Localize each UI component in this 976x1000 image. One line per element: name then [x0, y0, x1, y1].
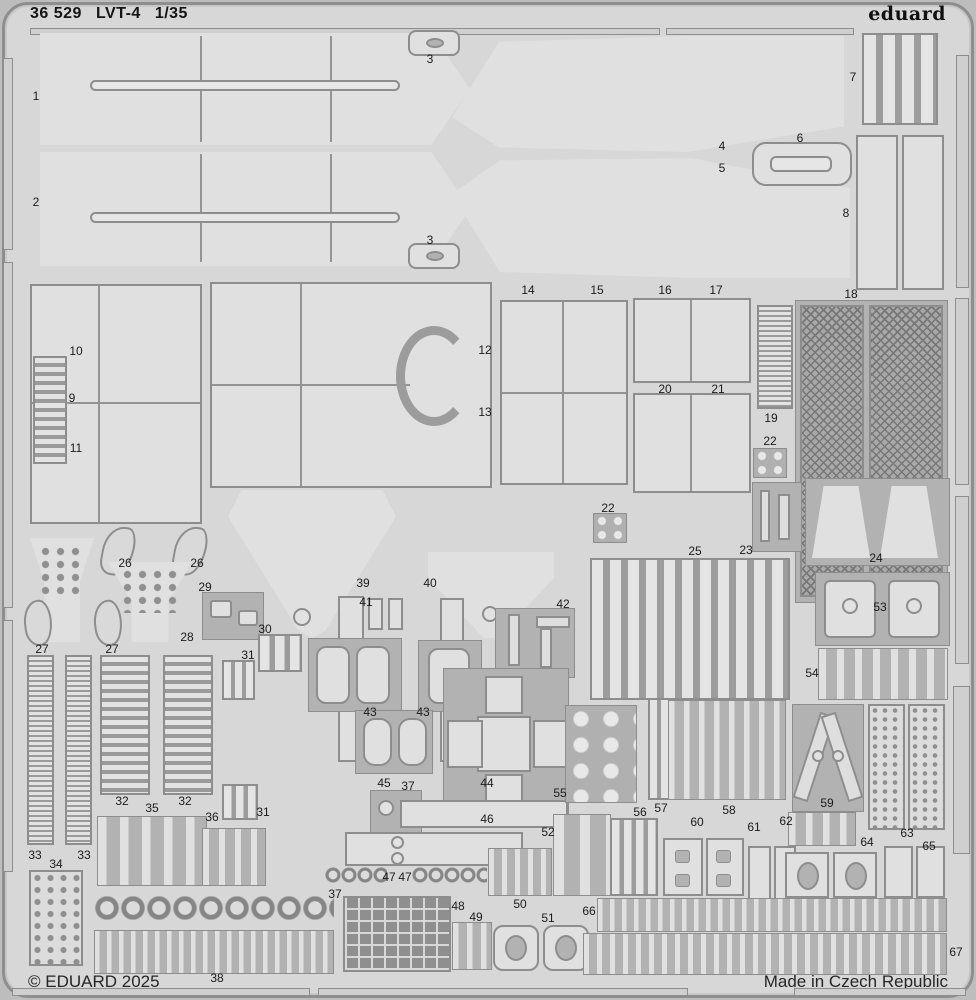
brand-logo: eduard	[868, 3, 946, 25]
pe-part	[953, 686, 970, 854]
pe-part	[325, 862, 387, 888]
part-number-label: 3	[427, 52, 434, 66]
part-number-label: 22	[601, 501, 614, 515]
pe-part	[690, 395, 692, 491]
pe-part	[222, 660, 255, 700]
part-number-label: 49	[469, 910, 482, 924]
pe-part	[555, 935, 577, 961]
pe-part	[794, 988, 966, 996]
pe-part	[477, 716, 531, 772]
pe-part	[533, 720, 569, 768]
pe-part	[812, 750, 824, 762]
part-number-label: 12	[478, 343, 491, 357]
pe-part	[100, 655, 150, 795]
part-number-label: 53	[873, 600, 886, 614]
pe-part	[330, 154, 332, 262]
part-number-label: 33	[28, 848, 41, 862]
pe-part	[884, 846, 913, 898]
pe-part	[238, 610, 258, 626]
part-number-label: 2	[33, 195, 40, 209]
part-number-label: 4	[719, 139, 726, 153]
part-number-label: 61	[747, 820, 760, 834]
pe-part	[818, 648, 948, 700]
part-number-label: 52	[541, 825, 554, 839]
part-number-label: 6	[797, 131, 804, 145]
part-number-label: 33	[77, 848, 90, 862]
pe-part	[94, 930, 334, 974]
pe-part	[666, 28, 854, 35]
pe-part	[391, 836, 404, 849]
pe-part	[842, 598, 858, 614]
pe-part	[565, 705, 637, 803]
pe-part	[120, 568, 180, 613]
part-number-label: 46	[480, 812, 493, 826]
pe-part	[778, 494, 790, 540]
pe-part	[862, 33, 938, 125]
part-number-label: 23	[739, 543, 752, 557]
pe-part	[908, 704, 945, 830]
pe-part	[3, 620, 13, 872]
pe-part	[200, 154, 202, 262]
part-number-label: 27	[35, 642, 48, 656]
pe-part	[593, 513, 627, 543]
sheet-title: 36 529 LVT-4 1/35	[30, 5, 188, 23]
pe-part	[40, 152, 470, 266]
pe-part	[832, 750, 844, 762]
pe-part	[90, 212, 400, 223]
pe-part	[391, 852, 404, 865]
pe-part	[590, 558, 790, 700]
scale: 1/35	[155, 5, 188, 23]
part-number-label: 39	[356, 576, 369, 590]
part-number-label: 31	[241, 648, 254, 662]
part-number-label: 24	[869, 551, 882, 565]
pe-part	[212, 384, 410, 386]
fret-sheet: 36 529 LVT-4 1/35 eduard © EDUARD 2025 M…	[0, 0, 976, 1000]
pe-part	[906, 598, 922, 614]
pe-part	[426, 251, 444, 261]
part-number-label: 11	[70, 441, 82, 455]
catalog-number: 36 529	[30, 5, 82, 23]
pe-part	[90, 80, 400, 91]
pe-part	[452, 922, 492, 970]
pe-part	[97, 816, 207, 886]
part-number-label: 8	[843, 206, 850, 220]
part-number-label: 10	[69, 344, 82, 358]
pe-part	[633, 393, 751, 493]
part-number-label: 18	[844, 287, 857, 301]
pe-part	[706, 838, 744, 896]
pe-part	[540, 628, 552, 668]
pe-part	[202, 828, 266, 886]
part-number-label: 26	[118, 556, 131, 570]
pe-part	[508, 614, 520, 666]
part-number-label: 38	[210, 971, 223, 985]
part-number-label: 58	[722, 803, 735, 817]
part-number-label: 37	[401, 779, 414, 793]
part-number-label: 5	[719, 161, 726, 175]
part-number-label: 60	[690, 815, 703, 829]
part-number-label: 41	[359, 595, 372, 609]
part-number-label: 19	[764, 411, 777, 425]
part-number-label: 22	[763, 434, 776, 448]
part-number-label: 25	[688, 544, 701, 558]
pe-part	[316, 646, 350, 704]
pe-part	[210, 600, 232, 618]
pe-part	[65, 655, 92, 845]
pe-part	[663, 838, 703, 896]
part-number-label: 43	[363, 705, 376, 719]
pe-part	[760, 490, 770, 542]
pe-part	[668, 700, 786, 800]
pe-part	[797, 862, 819, 890]
pe-part	[633, 298, 751, 383]
pe-part	[675, 874, 690, 887]
part-number-label: 64	[860, 835, 873, 849]
part-number-label: 34	[49, 857, 62, 871]
pe-part	[3, 58, 13, 250]
part-number-label: 13	[478, 405, 491, 419]
pe-part	[505, 935, 527, 961]
part-number-label: 65	[922, 839, 935, 853]
part-number-label: 51	[541, 911, 554, 925]
pe-part	[868, 704, 905, 830]
pe-part	[94, 888, 334, 928]
part-number-label: 47	[382, 870, 395, 884]
part-number-label: 21	[711, 382, 724, 396]
pe-part	[258, 634, 302, 672]
part-number-label: 40	[423, 576, 436, 590]
pe-part	[583, 933, 947, 975]
part-number-label: 3	[427, 233, 434, 247]
pe-part	[916, 846, 945, 898]
pe-part	[955, 298, 969, 485]
part-number-label: 27	[105, 642, 118, 656]
pe-part	[648, 698, 670, 800]
pe-part	[388, 598, 403, 630]
pe-part	[748, 846, 771, 901]
part-number-label: 59	[820, 796, 833, 810]
pe-part	[757, 305, 793, 409]
pe-part	[293, 608, 311, 626]
part-number-label: 32	[178, 794, 191, 808]
part-number-label: 44	[480, 776, 493, 790]
pe-part	[753, 448, 787, 478]
pe-part	[29, 870, 83, 966]
pe-part	[33, 356, 67, 464]
pe-part	[27, 655, 54, 845]
pe-part	[536, 616, 570, 628]
pe-part	[856, 135, 898, 290]
part-number-label: 56	[633, 805, 646, 819]
pe-part	[770, 156, 832, 172]
part-number-label: 16	[658, 283, 671, 297]
part-number-label: 20	[658, 382, 671, 396]
pe-part	[597, 898, 947, 932]
part-number-label: 37	[328, 887, 341, 901]
part-number-label: 9	[69, 391, 76, 405]
part-number-label: 35	[145, 801, 158, 815]
part-number-label: 36	[205, 810, 218, 824]
pe-part	[363, 718, 392, 766]
pe-part	[318, 988, 688, 996]
pe-part	[956, 55, 969, 288]
pe-part	[12, 988, 310, 996]
part-number-label: 45	[377, 776, 390, 790]
part-number-label: 55	[553, 786, 566, 800]
part-number-label: 47	[398, 870, 411, 884]
pe-part	[356, 646, 390, 704]
part-number-label: 14	[521, 283, 534, 297]
pe-part	[398, 718, 427, 766]
pe-fret-scan: 36 529 LVT-4 1/35 eduard © EDUARD 2025 M…	[0, 0, 976, 1000]
part-number-label: 63	[900, 826, 913, 840]
part-number-label: 57	[654, 801, 667, 815]
pe-part	[955, 496, 969, 664]
part-number-label: 26	[190, 556, 203, 570]
pe-part	[488, 848, 552, 896]
pe-part	[716, 874, 731, 887]
part-number-label: 30	[258, 622, 271, 636]
pe-part	[447, 720, 483, 768]
pe-part	[452, 36, 844, 152]
pe-part	[902, 135, 944, 290]
pe-part	[675, 850, 690, 863]
part-number-label: 17	[709, 283, 722, 297]
pe-part	[502, 392, 626, 394]
part-number-label: 54	[805, 666, 818, 680]
pe-part	[788, 812, 856, 846]
pe-part	[38, 545, 86, 600]
part-number-label: 62	[779, 814, 792, 828]
part-number-label: 48	[451, 899, 464, 913]
part-number-label: 15	[590, 283, 603, 297]
part-number-label: 1	[33, 89, 40, 103]
pe-part	[343, 896, 451, 972]
part-number-label: 7	[850, 70, 857, 84]
part-number-label: 28	[180, 630, 193, 644]
part-number-label: 31	[256, 805, 269, 819]
pe-part	[485, 676, 523, 714]
pe-part	[378, 800, 394, 816]
pe-part	[412, 862, 487, 888]
pe-part	[222, 784, 258, 820]
pe-part	[610, 818, 658, 896]
kit-name: LVT-4	[96, 5, 141, 23]
part-number-label: 66	[582, 904, 595, 918]
pe-part	[690, 300, 692, 381]
pe-part	[163, 655, 213, 795]
part-number-label: 29	[198, 580, 211, 594]
pe-part	[426, 38, 444, 48]
pe-part	[98, 286, 100, 522]
part-number-label: 43	[416, 705, 429, 719]
pe-part	[716, 850, 731, 863]
pe-part	[396, 326, 472, 426]
part-number-label: 32	[115, 794, 128, 808]
pe-part	[845, 862, 867, 890]
part-number-label: 67	[949, 945, 962, 959]
part-number-label: 50	[513, 897, 526, 911]
pe-part	[553, 814, 611, 896]
part-number-label: 42	[556, 597, 569, 611]
pe-part	[3, 262, 13, 608]
